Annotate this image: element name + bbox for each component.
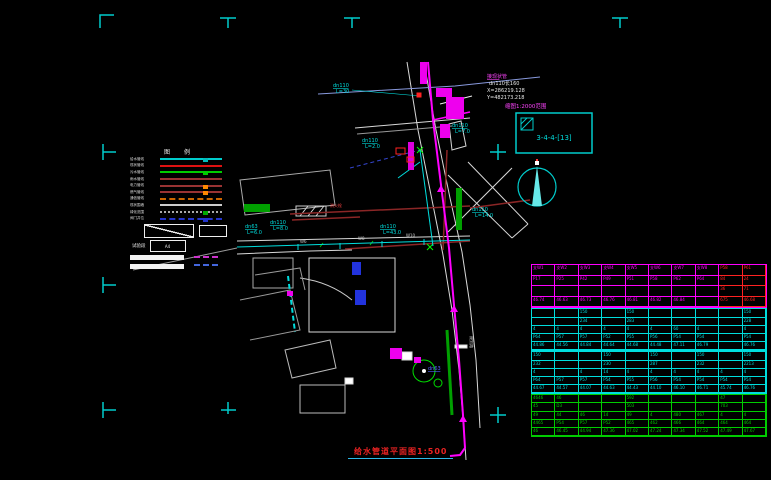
table-cell: P54: [602, 377, 625, 385]
table-cell: 4: [532, 326, 555, 334]
legend-row-label: 给水管线: [130, 157, 160, 162]
table-cell: P54: [696, 377, 719, 385]
tree-circle: [434, 379, 442, 387]
table-cell: 46.84: [672, 297, 695, 308]
test-section-box: A4: [150, 240, 186, 252]
map-label: L=6.0: [247, 230, 262, 236]
table-cell: 703: [719, 403, 742, 411]
table-cell: 47: [719, 395, 742, 403]
legend-line-sample: [160, 158, 222, 160]
table-cell: D3: [555, 403, 578, 411]
table-cell: [579, 361, 602, 369]
valve-cross: [427, 244, 433, 250]
table-cell: 44.67: [532, 385, 555, 393]
table-cell: [696, 286, 719, 297]
table-section: 1501501501501502322302872322213441444444…: [531, 351, 767, 394]
table-cell: 45: [532, 403, 555, 411]
table-cell: P64: [532, 334, 555, 342]
legend-row-label: 燃气管线: [130, 190, 160, 195]
table-cell: [579, 395, 602, 403]
table-cell: 14: [602, 412, 625, 420]
map-label: dn110长160: [489, 80, 519, 87]
table-cell: 46.76: [602, 297, 625, 308]
legend-line-sample: [160, 198, 222, 200]
existing-pipe: [292, 217, 360, 220]
green-strip: [447, 330, 452, 415]
legend-rows: 给水管线现状管线污水管线雨水管线电力管线燃气管线通信管线现状围墙绿化范围阀门井位: [130, 156, 230, 222]
table-cell: 464: [743, 420, 766, 428]
table-cell: 4: [626, 369, 649, 377]
table-cell: 47.49: [719, 428, 742, 436]
table-cell: 465: [626, 420, 649, 428]
table-cell: P58: [649, 276, 672, 287]
green-strip: [244, 204, 270, 212]
map-label: L=14.0: [475, 213, 493, 219]
table-cell: [672, 318, 695, 326]
legend-row: 通信管线: [130, 196, 230, 203]
table-cell: [743, 395, 766, 403]
table-cell: 4: [602, 326, 625, 334]
table-cell: 4: [579, 369, 602, 377]
road-edge: [237, 236, 470, 241]
table-cell: P54: [672, 334, 695, 342]
map-label: dn63: [428, 366, 441, 372]
table-cell: 46.76: [743, 385, 766, 393]
table-cell: [719, 342, 742, 350]
table-cell: [602, 403, 625, 411]
table-cell: 4: [649, 326, 672, 334]
top-tick-mark: [612, 18, 628, 28]
structure-block: [402, 352, 412, 360]
cad-drawing-canvas: 缩图1:2000范围 3-4-4-[13] dn110L=30dn110L=7.…: [0, 0, 771, 480]
legend-line-sample: [160, 185, 222, 187]
table-cell: 283: [626, 318, 649, 326]
table-cell: P55: [626, 377, 649, 385]
table-cell: [579, 286, 602, 297]
table-cell: P54: [696, 334, 719, 342]
table-cell: P49: [602, 276, 625, 287]
table-cell: [672, 403, 695, 411]
table-cell: [532, 309, 555, 317]
table-cell: P55: [626, 334, 649, 342]
table-section: 1501501502342832284444446044P64P57P57P52…: [531, 308, 767, 351]
table-cell: 46.81: [626, 297, 649, 308]
table-cell: P54: [719, 377, 742, 385]
table-cell: 4: [649, 369, 672, 377]
legend-row-label: 电力管线: [130, 183, 160, 188]
map-label: 消火栓: [330, 202, 342, 208]
map-label: L=2.0: [365, 144, 380, 150]
table-cell: [672, 286, 695, 297]
map-label: L=8.0: [273, 226, 288, 232]
table-cell: 44.43: [626, 385, 649, 393]
blue-dash-sample: [194, 264, 218, 266]
table-cell: P57: [579, 377, 602, 385]
table-cell: 2213: [743, 361, 766, 369]
table-cell: 47.34: [672, 428, 695, 436]
table-cell: 46.71: [696, 385, 719, 393]
table-cell: P52: [602, 334, 625, 342]
table-cell: [719, 334, 742, 342]
table-cell: 24: [743, 276, 766, 287]
table-cell: 150: [649, 352, 672, 360]
structure-block: [345, 378, 353, 384]
magenta-block: [287, 291, 293, 296]
proposed-pipeline: [287, 62, 470, 456]
table-cell: [579, 352, 602, 360]
table-cell: 675: [719, 297, 742, 308]
bar-samples: [130, 255, 184, 269]
index-hatch-line: [521, 118, 533, 130]
north-arrow-needle: [532, 166, 542, 206]
building-outline: [285, 340, 336, 378]
tree-center-dot: [422, 369, 426, 373]
map-label: L=30: [336, 89, 349, 95]
map-label: Y=482173.218: [486, 95, 524, 101]
magenta-block: [408, 142, 414, 170]
table-cell: 46.79: [696, 342, 719, 350]
table-cell: [626, 361, 649, 369]
table-cell: 46: [532, 428, 555, 436]
table-cell: [719, 352, 742, 360]
table-cell: P56: [649, 377, 672, 385]
table-cell: 230: [602, 361, 625, 369]
table-cell: [649, 403, 672, 411]
left-tick-mark: [103, 402, 116, 418]
table-cell: 503: [626, 403, 649, 411]
test-section-label: 试验段: [132, 243, 146, 249]
index-hatch-line: [521, 118, 527, 124]
legend-row: 雨水管线: [130, 176, 230, 183]
road-edge: [237, 250, 352, 254]
legend-line-sample: [160, 211, 222, 213]
table-cell: [696, 318, 719, 326]
table-cell: 支W7: [672, 265, 695, 276]
legend-marker: [203, 158, 208, 162]
magenta-block: [436, 88, 452, 97]
table-cell: [696, 309, 719, 317]
table-cell: 4: [719, 369, 742, 377]
table-cell: [649, 286, 672, 297]
table-cell: 232: [696, 361, 719, 369]
table-cell: P17: [532, 276, 555, 287]
table-cell: 支W2: [555, 265, 578, 276]
table-cell: P58: [719, 265, 742, 276]
table-cell: 4: [743, 369, 766, 377]
map-labels: dn110L=30dn110L=7.0dn110L=43.0dn63L=6.0d…: [245, 73, 525, 372]
table-cell: [602, 395, 625, 403]
table-cell: 4465: [532, 420, 555, 428]
legend-row-label: 污水管线: [130, 170, 160, 175]
table-cell: [626, 352, 649, 360]
legend-row: 现状围墙: [130, 202, 230, 209]
table-cell: 150: [743, 309, 766, 317]
table-cell: [672, 395, 695, 403]
building-outline: [255, 268, 305, 290]
legend-row: 绿化范围: [130, 209, 230, 216]
table-cell: 84: [719, 276, 742, 287]
note-box: [199, 225, 227, 237]
road-bar-sample: [130, 264, 184, 269]
table-cell: 44.07: [579, 385, 602, 393]
map-label: X=286219.128: [487, 88, 525, 94]
table-cell: 45.74: [719, 385, 742, 393]
table-cell: 47.52: [696, 428, 719, 436]
legend-row: 污水管线: [130, 169, 230, 176]
table-cell: P51: [626, 276, 649, 287]
legend-line-sample: [160, 191, 222, 193]
magenta-block: [390, 348, 402, 359]
table-cell: 44.64: [602, 342, 625, 350]
table-cell: 支W4: [602, 265, 625, 276]
table-cell: 60: [672, 326, 695, 334]
table-cell: [672, 309, 695, 317]
legend-row-label: 雨水管线: [130, 177, 160, 182]
table-cell: [672, 361, 695, 369]
table-cell: P54: [555, 420, 578, 428]
table-cell: 47.24: [649, 428, 672, 436]
table-cell: 71: [743, 286, 766, 297]
table-cell: 47.02: [626, 428, 649, 436]
table-cell: 234: [579, 318, 602, 326]
drawing-title: 给水管道平面图1:500: [348, 446, 453, 459]
building-outline: [240, 290, 300, 340]
table-cell: [672, 352, 695, 360]
water-pipe: [420, 150, 433, 246]
magenta-block: [420, 62, 427, 84]
table-cell: P57: [555, 377, 578, 385]
table-cell: 4: [626, 326, 649, 334]
table-cell: 4: [743, 326, 766, 334]
table-cell: [696, 395, 719, 403]
table-cell: 4: [743, 412, 766, 420]
table-section: 支W1支W2支W3支W4支W5支W6支W7支W8P58P61P17P25P42P…: [531, 264, 767, 308]
top-tick-mark: [220, 18, 236, 28]
table-cell: P56: [649, 334, 672, 342]
table-cell: 4: [532, 369, 555, 377]
table-cell: 46.68: [743, 297, 766, 308]
legend-row-label: 现状围墙: [130, 203, 160, 208]
table-cell: [719, 309, 742, 317]
table-cell: 46.76: [743, 342, 766, 350]
legend-row: 电力管线: [130, 182, 230, 189]
table-cell: 46: [555, 395, 578, 403]
table-cell: [602, 309, 625, 317]
north-arrow-tip: [535, 161, 539, 165]
magenta-dash-sample: [194, 256, 218, 258]
legend-marker: [203, 191, 208, 195]
table-cell: 4: [649, 412, 672, 420]
table-cell: [602, 286, 625, 297]
table-cell: 150: [532, 352, 555, 360]
table-cell: 462: [649, 420, 672, 428]
hatch-line: [300, 206, 308, 216]
legend-row-label: 通信管线: [130, 196, 160, 201]
green-strip: [456, 188, 462, 230]
legend-row-label: 现状管线: [130, 163, 160, 168]
table-cell: 4: [672, 369, 695, 377]
slope-symbol: [144, 224, 194, 238]
legend-row: 阀门井位: [130, 215, 230, 222]
map-label: 规划路: [469, 336, 475, 348]
top-tick-mark: [344, 18, 360, 28]
blue-structures: [352, 262, 366, 305]
table-cell: 287: [649, 361, 672, 369]
table-cell: 4646: [532, 395, 555, 403]
table-cell: 44.68: [626, 342, 649, 350]
red-box: [417, 93, 421, 97]
index-box-caption: 缩图1:2000范围: [505, 102, 547, 110]
table-cell: 4: [719, 412, 742, 420]
table-cell: 46: [579, 412, 602, 420]
magenta-block: [446, 97, 464, 119]
table-cell: 464: [696, 420, 719, 428]
leader-line: [352, 90, 420, 96]
flow-arrow: [459, 415, 467, 422]
red-box: [396, 148, 405, 154]
blue-block: [355, 290, 366, 305]
table-cell: 4: [579, 326, 602, 334]
legend-bars: [130, 255, 230, 269]
table-section: 4646465924745D35037034944461449448046744…: [531, 394, 767, 437]
table-cell: 46.63: [555, 297, 578, 308]
table-cell: [719, 361, 742, 369]
magenta-block: [414, 357, 421, 363]
cross-mark: [490, 144, 506, 160]
dash-samples: [194, 256, 218, 269]
table-cell: 4: [696, 369, 719, 377]
table-cell: 4: [555, 326, 578, 334]
table-cell: 46.74: [532, 297, 555, 308]
table-cell: P54: [672, 377, 695, 385]
table-cell: 228: [743, 318, 766, 326]
legend-slope-row: [144, 224, 230, 238]
table-cell: 支W8: [696, 265, 719, 276]
legend: 图 例 给水管线现状管线污水管线雨水管线电力管线燃气管线通信管线现状围墙绿化范围…: [130, 147, 230, 269]
table-cell: 49: [626, 412, 649, 420]
index-box: 缩图1:2000范围 3-4-4-[13]: [505, 102, 592, 153]
road-bar-sample: [130, 255, 184, 260]
index-box-label: 3-4-4-[13]: [536, 134, 572, 142]
legend-row-label: 绿化范围: [130, 210, 160, 215]
table-cell: P52: [602, 420, 625, 428]
table-cell: P42: [579, 276, 602, 287]
map-label: L=43.0: [383, 230, 401, 236]
table-cell: 464: [719, 420, 742, 428]
table-cell: 150: [602, 352, 625, 360]
table-cell: 592: [626, 395, 649, 403]
index-box-frame: [516, 113, 592, 153]
table-cell: 47.11: [672, 342, 695, 350]
well-data-table: 支W1支W2支W3支W4支W5支W6支W7支W8P58P61P17P25P42P…: [531, 264, 767, 437]
table-cell: 44.84: [579, 342, 602, 350]
table-cell: P54: [743, 334, 766, 342]
table-cell: 466: [672, 420, 695, 428]
left-tick-mark: [103, 144, 116, 160]
table-cell: 46.73: [579, 297, 602, 308]
table-cell: P57: [579, 334, 602, 342]
table-cell: P62: [672, 276, 695, 287]
legend-row-label: 阀门井位: [130, 216, 160, 221]
table-cell: P64: [532, 377, 555, 385]
table-cell: P61: [743, 265, 766, 276]
north-arrow: [518, 159, 556, 206]
table-cell: P57: [555, 334, 578, 342]
table-cell: [555, 361, 578, 369]
legend-row: 给水管线: [130, 156, 230, 163]
legend-marker: [203, 211, 208, 215]
table-cell: 44.10: [649, 385, 672, 393]
legend-line-sample: [160, 204, 222, 206]
legend-test-row: 试验段 A4: [132, 240, 230, 253]
curb-curve: [300, 278, 352, 300]
table-cell: P25: [555, 276, 578, 287]
legend-title: 图 例: [130, 147, 230, 156]
table-cell: [555, 286, 578, 297]
table-cell: 44.94: [579, 428, 602, 436]
table-cell: 480: [672, 412, 695, 420]
table-cell: [696, 297, 719, 308]
table-cell: 44.56: [555, 342, 578, 350]
building-outline: [300, 385, 345, 413]
map-label: W8: [358, 236, 365, 241]
table-cell: 150: [743, 352, 766, 360]
legend-marker: [203, 218, 208, 222]
table-cell: 36: [719, 286, 742, 297]
building-outline: [253, 258, 293, 288]
legend-marker: [203, 185, 208, 189]
left-tick-mark: [103, 277, 116, 293]
table-cell: 44.48: [649, 342, 672, 350]
table-cell: [649, 309, 672, 317]
table-cell: [579, 403, 602, 411]
table-cell: [555, 309, 578, 317]
table-cell: [626, 286, 649, 297]
table-cell: 44.63: [602, 385, 625, 393]
table-cell: 支W3: [579, 265, 602, 276]
map-label: 接现状管: [487, 73, 507, 80]
table-cell: 47.67: [743, 428, 766, 436]
table-cell: 支W5: [626, 265, 649, 276]
table-cell: 支W1: [532, 265, 555, 276]
table-cell: [532, 286, 555, 297]
table-cell: 150: [696, 352, 719, 360]
hatch-line: [316, 206, 324, 216]
table-cell: 14: [602, 369, 625, 377]
blue-block: [352, 262, 361, 275]
table-cell: [719, 318, 742, 326]
table-cell: [555, 369, 578, 377]
legend-line-sample: [160, 171, 222, 173]
cross-mark: [490, 407, 506, 423]
table-cell: [555, 352, 578, 360]
table-cell: 支W6: [649, 265, 672, 276]
legend-line-sample: [160, 178, 222, 180]
legend-line-sample: [160, 218, 222, 220]
map-label: L=7.0: [455, 129, 470, 135]
table-cell: 46.45: [555, 428, 578, 436]
map-label: W6: [300, 239, 307, 244]
table-cell: 44.86: [532, 342, 555, 350]
map-label: W10: [406, 233, 416, 238]
table-cell: P64: [696, 276, 719, 287]
legend-row: 燃气管线: [130, 189, 230, 196]
table-cell: 232: [532, 361, 555, 369]
table-cell: 44.57: [555, 385, 578, 393]
table-cell: [719, 326, 742, 334]
table-cell: [602, 318, 625, 326]
magenta-block: [440, 124, 450, 138]
